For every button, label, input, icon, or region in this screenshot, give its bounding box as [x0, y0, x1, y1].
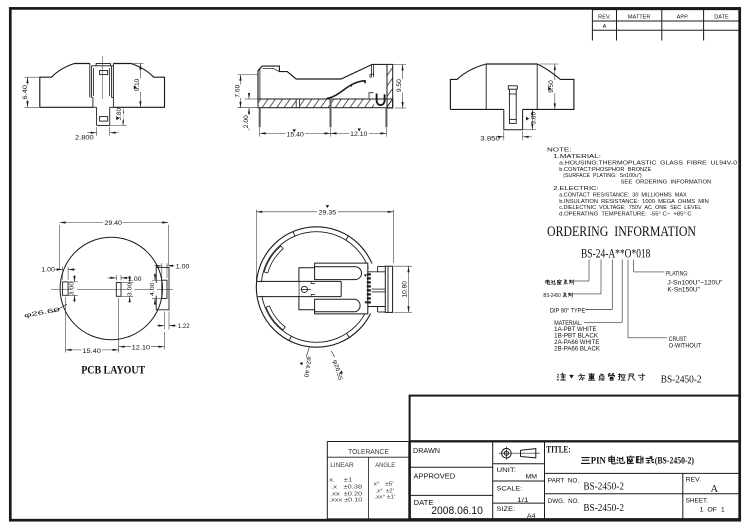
svg-text:ORDERING INFORMATION: ORDERING INFORMATION	[547, 224, 696, 240]
svg-text:BS-2450-2: BS-2450-2	[583, 503, 624, 514]
svg-text:c.DIELECTNIC VOLTAGE: 750V: c.DIELECTNIC VOLTAGE: 750V AC ONE SEC LE…	[559, 205, 702, 211]
svg-text:.xx ±0.20: .xx ±0.20	[330, 491, 362, 497]
svg-text:2.00: 2.00	[244, 114, 250, 128]
svg-text:BS-24-A**O*018: BS-24-A**O*018	[581, 246, 650, 261]
svg-text:BS-2450-2: BS-2450-2	[661, 373, 702, 385]
svg-text:15.40: 15.40	[287, 133, 305, 139]
svg-text:2B-PA66 BLACK: 2B-PA66 BLACK	[554, 346, 600, 352]
svg-text:ANGLE: ANGLE	[375, 462, 396, 469]
svg-text:3.00: 3.00	[69, 282, 75, 296]
svg-text:29.35: 29.35	[319, 211, 337, 217]
svg-text:(SURFACE PLATING: Sn100u"): (SURFACE PLATING: Sn100u")	[563, 173, 641, 179]
svg-text:1.22: 1.22	[178, 324, 190, 330]
svg-text:DATE: DATE	[714, 14, 729, 20]
svg-text:TITLE:: TITLE:	[546, 445, 570, 455]
svg-text:29.40: 29.40	[104, 221, 122, 227]
svg-text:MM: MM	[526, 473, 538, 480]
svg-text:A: A	[711, 484, 719, 495]
svg-text:BS-2450: BS-2450	[543, 293, 561, 299]
svg-text:b.CONTACT:PHOSPHOR BRONZE: b.CONTACT:PHOSPHOR BRONZE	[559, 167, 651, 173]
svg-text:SHEET.: SHEET.	[686, 498, 709, 505]
svg-text:.x ±0.38: .x ±0.38	[331, 485, 362, 491]
svg-text:1.00: 1.00	[41, 268, 55, 274]
svg-text:O-WITHOUT: O-WITHOUT	[669, 344, 702, 350]
svg-text:DRAWN: DRAWN	[413, 446, 440, 455]
svg-text:2.800: 2.800	[75, 136, 95, 142]
svg-text:1 OF 1: 1 OF 1	[700, 507, 726, 514]
svg-text:UNIT:: UNIT:	[497, 467, 517, 474]
svg-text:A: A	[603, 24, 607, 30]
svg-text:3.80: 3.80	[532, 111, 538, 124]
svg-text:SCALE:: SCALE:	[497, 485, 523, 492]
svg-text:a.HOUSING:THERMOPLASTIC GLASS: a.HOUSING:THERMOPLASTIC GLASS FIBRE UL94…	[559, 160, 737, 166]
svg-text:.x° ±2': .x° ±2'	[376, 488, 394, 494]
svg-text:7.60: 7.60	[235, 84, 241, 98]
svg-text:9.10: 9.10	[135, 78, 141, 91]
svg-text:CRUST:: CRUST:	[669, 337, 688, 343]
svg-text:REV.: REV.	[598, 14, 611, 20]
svg-text:SEE ORDERING INFORMATION: SEE ORDERING INFORMATION	[621, 180, 712, 186]
svg-text:MATTER: MATTER	[628, 14, 651, 20]
svg-text:9.50: 9.50	[397, 78, 403, 92]
svg-text:15.40: 15.40	[82, 349, 101, 355]
svg-text:PART NO.: PART NO.	[548, 477, 580, 484]
svg-text:PIN: PIN	[591, 456, 606, 466]
svg-text:PCB LAYOUT: PCB LAYOUT	[81, 365, 145, 377]
svg-text:x° ±5': x° ±5'	[374, 482, 394, 488]
svg-text:1B-PBT BLACK: 1B-PBT BLACK	[554, 334, 598, 340]
svg-text:REV.: REV.	[686, 477, 702, 484]
svg-text:1A-PBT WHITE: 1A-PBT WHITE	[554, 327, 596, 333]
svg-text:9.50: 9.50	[549, 80, 555, 93]
svg-text:2008.06.10: 2008.06.10	[431, 505, 483, 517]
svg-text:10.80: 10.80	[403, 280, 409, 297]
svg-text:(BS-2450-2): (BS-2450-2)	[655, 455, 694, 466]
svg-text:BS-2450-2: BS-2450-2	[583, 482, 624, 493]
svg-text:12.10: 12.10	[350, 132, 368, 138]
svg-text:x. ±1: x. ±1	[329, 477, 352, 483]
svg-text:PLATING:: PLATING:	[666, 271, 689, 277]
svg-text:1.00: 1.00	[176, 265, 190, 271]
svg-text:APPROVED: APPROVED	[414, 471, 456, 480]
svg-text:LINEAR: LINEAR	[330, 462, 354, 469]
svg-text:a.CONTACT RESISTANCE: 30 MI: a.CONTACT RESISTANCE: 30 MILLIOHMS MAX	[559, 192, 687, 198]
svg-text:A4: A4	[527, 513, 536, 520]
svg-text:NOTE:: NOTE:	[547, 148, 572, 154]
svg-text:6.40: 6.40	[23, 84, 29, 99]
svg-text:1/1: 1/1	[517, 497, 529, 504]
svg-text:SIZE:: SIZE:	[497, 506, 516, 513]
svg-text:DWG. NO.: DWG. NO.	[548, 498, 580, 505]
svg-text:TOLERANCE: TOLERANCE	[348, 449, 389, 456]
svg-text:2.ELECTRIC:: 2.ELECTRIC:	[553, 186, 599, 192]
svg-text:J-Sn100U"~120U": J-Sn100U"~120U"	[667, 280, 722, 286]
svg-text:b.INSULATION RESISTANCE: 100: b.INSULATION RESISTANCE: 1000 MEGA OHMS …	[559, 199, 709, 205]
svg-text:3.00: 3.00	[127, 283, 133, 297]
svg-text:.xx° ±1': .xx° ±1'	[374, 495, 395, 501]
svg-text:.xxx ±0.10: .xxx ±0.10	[329, 498, 362, 504]
svg-text:12.10: 12.10	[132, 346, 151, 352]
svg-text:2A-PA66 WHITE: 2A-PA66 WHITE	[554, 340, 599, 346]
svg-text:d.OPERATING TEMPERATURE: -55: d.OPERATING TEMPERATURE: -55° C~ +85° C	[559, 212, 691, 218]
svg-text:K-Sn150U": K-Sn150U"	[667, 288, 700, 294]
svg-text:MATERIAL:: MATERIAL:	[554, 321, 583, 327]
svg-text:4.00: 4.00	[150, 283, 156, 297]
svg-text:1.MATERIAL:: 1.MATERIAL:	[553, 154, 601, 160]
svg-text:DIP 90° TYPE: DIP 90° TYPE	[550, 309, 585, 315]
svg-text:3.850: 3.850	[480, 137, 500, 143]
svg-text:APP.: APP.	[677, 14, 689, 20]
